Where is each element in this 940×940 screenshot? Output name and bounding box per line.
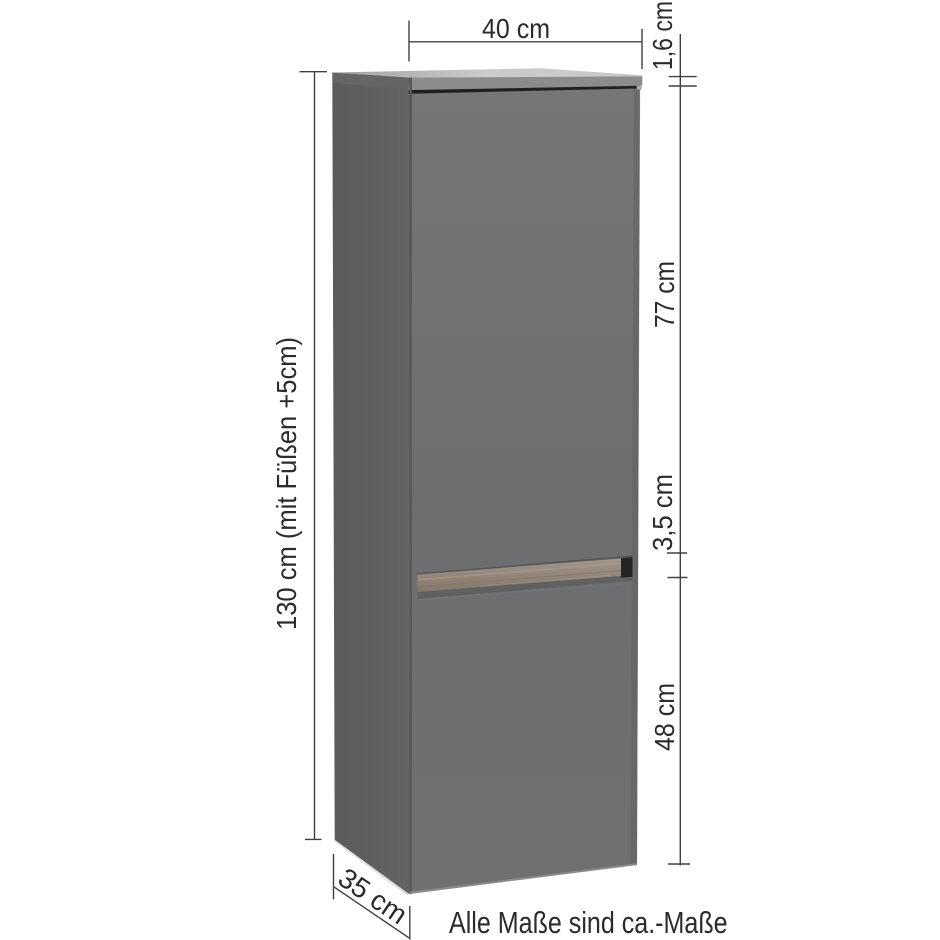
svg-text:77 cm: 77 cm <box>649 261 680 328</box>
svg-text:1,6 cm: 1,6 cm <box>647 1 678 70</box>
svg-text:Alle Maße sind ca.-Maße: Alle Maße sind ca.-Maße <box>449 905 728 940</box>
svg-text:40 cm: 40 cm <box>482 13 550 44</box>
svg-text:130 cm (mit Füßen +5cm): 130 cm (mit Füßen +5cm) <box>271 337 302 630</box>
svg-text:3,5 cm: 3,5 cm <box>647 474 678 551</box>
svg-text:48 cm: 48 cm <box>649 683 680 751</box>
